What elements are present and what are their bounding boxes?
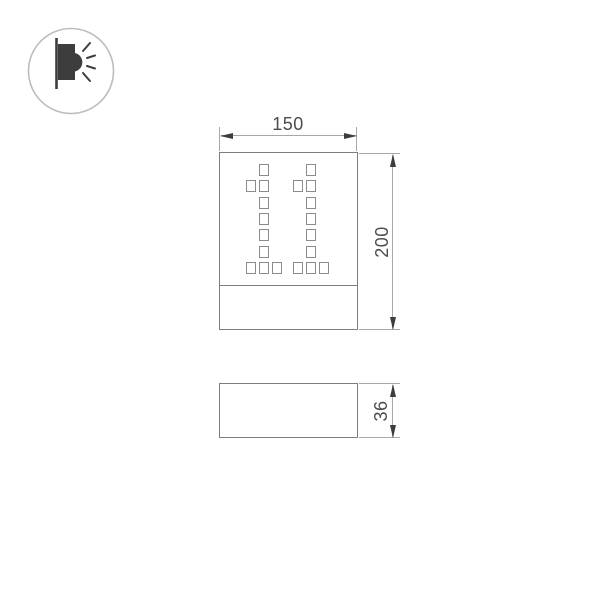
dim-height-arrow-top — [390, 154, 396, 167]
dim-width-label: 150 — [258, 114, 318, 134]
led-cell — [246, 262, 256, 274]
led-cell — [306, 262, 316, 274]
dim-height-arrow-bottom — [390, 317, 396, 330]
dim-width-extension-left — [219, 127, 220, 151]
led-cell — [259, 246, 269, 258]
led-digit — [246, 164, 282, 287]
led-cell — [259, 164, 269, 176]
led-cell — [259, 229, 269, 241]
wall-lamp-icon — [26, 26, 116, 116]
dim-height-line — [392, 155, 393, 329]
dim-height-label: 200 — [372, 212, 392, 272]
led-cell — [306, 229, 316, 241]
led-cell — [259, 197, 269, 209]
led-cell — [306, 180, 316, 192]
icon-light-rays — [83, 43, 95, 81]
led-cell — [259, 180, 269, 192]
led-cell — [293, 180, 303, 192]
icon-lamp-body — [58, 44, 75, 80]
led-cell — [306, 197, 316, 209]
dim-width-line — [221, 135, 356, 136]
dim-width-arrow-right — [344, 133, 357, 139]
dim-depth-label: 36 — [371, 389, 391, 433]
dim-width-extension-right — [356, 127, 357, 151]
technical-drawing-page: { "logo": { "icon": "wall-lamp-light-ico… — [0, 0, 600, 600]
led-cell — [306, 164, 316, 176]
led-cell — [306, 246, 316, 258]
led-cell — [246, 180, 256, 192]
icon-light-dome — [75, 53, 82, 72]
led-cell — [319, 262, 329, 274]
led-digit — [293, 164, 329, 287]
front-view-divider-line — [220, 285, 357, 286]
led-cell — [272, 262, 282, 274]
dim-width-arrow-left — [220, 133, 233, 139]
led-cell — [306, 213, 316, 225]
front-view-outline — [219, 152, 358, 330]
brand-mark — [26, 26, 116, 116]
side-view-outline — [219, 383, 358, 438]
led-cell — [259, 262, 269, 274]
led-cell — [259, 213, 269, 225]
led-cell — [293, 262, 303, 274]
